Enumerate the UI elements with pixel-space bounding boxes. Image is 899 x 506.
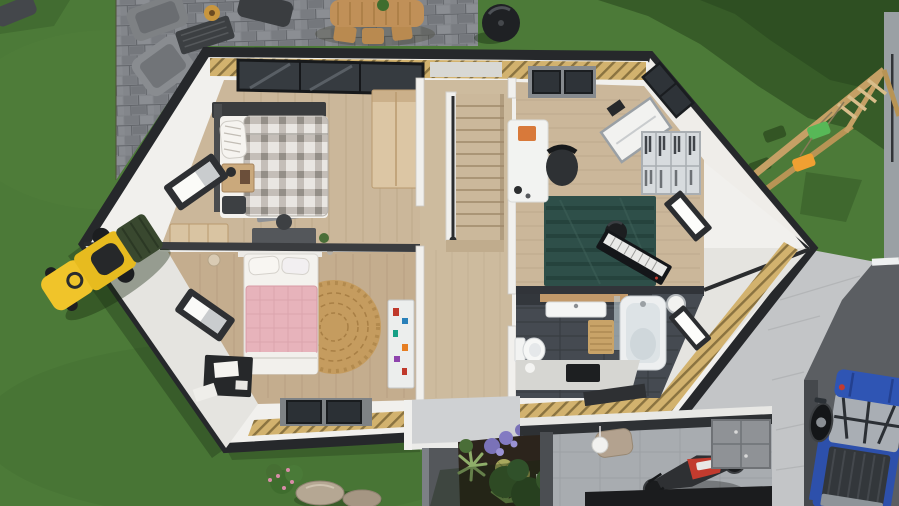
staircase — [456, 94, 504, 242]
landing-window — [430, 62, 502, 77]
pillow — [281, 257, 309, 275]
grill-knob — [498, 20, 504, 26]
stair-edge-shade — [500, 94, 504, 242]
pendant-lamp — [208, 254, 220, 266]
garage-pendant-lamp — [592, 437, 608, 453]
roof-window — [565, 71, 592, 93]
counter-inset — [566, 364, 600, 382]
pink-duvet — [246, 286, 317, 354]
garage — [520, 406, 772, 506]
pillow — [248, 256, 279, 276]
canopy-left-edge — [404, 400, 412, 450]
tub-faucet — [640, 301, 646, 307]
desk-item — [514, 186, 522, 194]
sink-faucet — [574, 304, 578, 308]
fence-line — [891, 54, 894, 162]
stair-landing — [446, 240, 504, 252]
dresser-papers — [214, 361, 239, 378]
wardrobe-shade — [372, 90, 420, 102]
sticker-wardrobe — [388, 300, 414, 388]
plaid-duvet — [244, 116, 328, 216]
counter-roll — [525, 363, 535, 373]
dining-chair — [333, 25, 357, 44]
bathtub-shadow — [630, 328, 656, 360]
dining-chair — [362, 28, 384, 44]
office-chair — [546, 148, 578, 186]
pillow — [219, 120, 247, 159]
bedside-stool — [222, 196, 246, 214]
hall-wall-left — [416, 78, 424, 206]
cabinet-handle — [734, 430, 738, 434]
glass-screen — [614, 296, 620, 350]
canopy-leaves — [507, 459, 529, 481]
dresser-item — [235, 380, 247, 390]
nightstand-book — [240, 170, 250, 184]
skylight — [287, 401, 321, 423]
hallway-staircase — [420, 62, 512, 402]
office-music-room — [508, 63, 712, 288]
low-cabinet — [170, 224, 228, 244]
skylight — [327, 401, 361, 423]
outdoor-dining-set — [315, 0, 435, 46]
shrub — [459, 439, 473, 453]
wood-bath-mat — [588, 320, 614, 354]
roof-window — [533, 71, 560, 93]
desk-chair — [276, 214, 292, 230]
toilet-seat — [529, 343, 541, 357]
pillar-highlight — [422, 448, 429, 506]
tray-dish — [209, 10, 215, 16]
curb-line — [872, 257, 899, 265]
floorplan-render — [0, 0, 899, 506]
desk-plant — [319, 233, 329, 243]
cabinet-handle — [744, 454, 748, 458]
hall-wall-right — [508, 78, 516, 98]
garage-side-wall — [540, 432, 553, 506]
orange-box — [518, 126, 536, 141]
rock — [343, 490, 381, 506]
desk-item — [526, 194, 531, 199]
foot-blanket — [246, 352, 317, 374]
shrub-leaves — [266, 464, 282, 480]
hall-wall-left — [416, 246, 424, 404]
shrub-leaves — [285, 465, 303, 483]
